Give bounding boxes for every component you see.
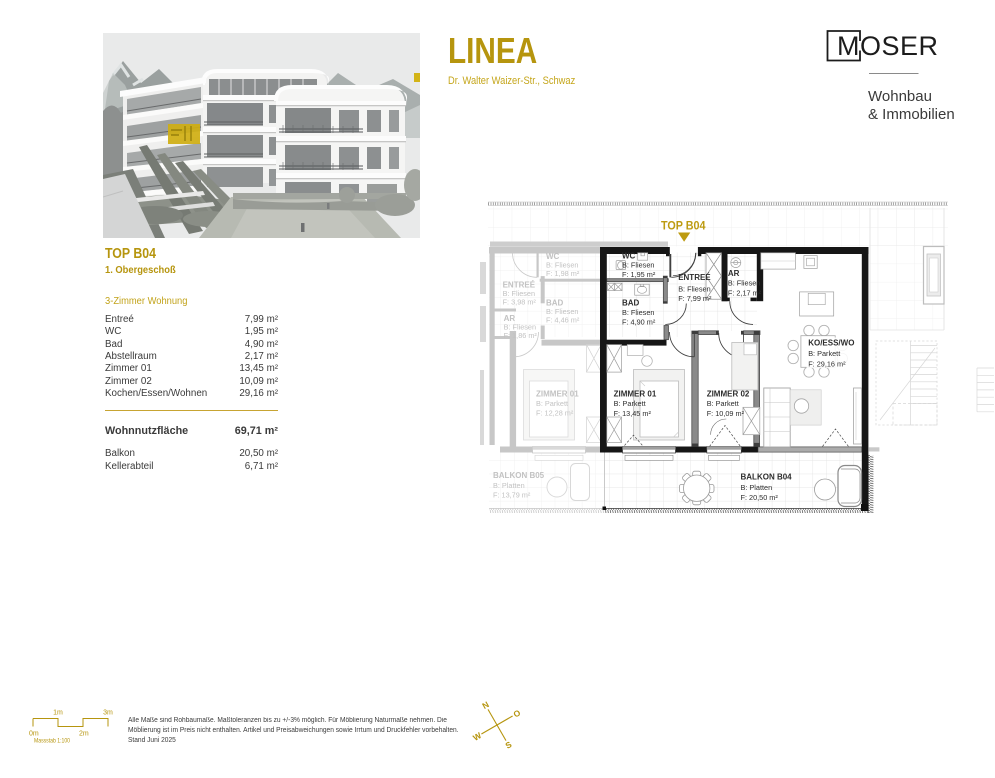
svg-text:F: 4,46 m²: F: 4,46 m² xyxy=(546,316,580,325)
svg-text:N: N xyxy=(480,699,490,711)
svg-text:1m: 1m xyxy=(53,710,63,717)
svg-text:0m: 0m xyxy=(29,731,39,738)
svg-text:Massstab 1:100: Massstab 1:100 xyxy=(34,738,70,745)
svg-text:BAD: BAD xyxy=(622,298,640,307)
svg-text:B: Parkett: B: Parkett xyxy=(707,399,739,408)
svg-text:2m: 2m xyxy=(79,731,89,738)
svg-text:TOP B04: TOP B04 xyxy=(661,221,706,233)
svg-text:S: S xyxy=(504,739,514,751)
svg-text:WC: WC xyxy=(622,252,636,261)
svg-text:F: 7,99 m²: F: 7,99 m² xyxy=(678,294,712,303)
svg-text:ENTREÉ: ENTREÉ xyxy=(678,273,711,282)
svg-text:BALKON B05: BALKON B05 xyxy=(493,471,545,480)
svg-text:ZIMMER 01: ZIMMER 01 xyxy=(536,389,579,398)
svg-text:3m: 3m xyxy=(103,710,113,717)
svg-text:F: 3,98 m²: F: 3,98 m² xyxy=(503,298,537,307)
svg-text:Wohnbau: Wohnbau xyxy=(868,88,932,105)
svg-text:B: Fliesen: B: Fliesen xyxy=(678,284,710,293)
svg-text:B: Parkett: B: Parkett xyxy=(614,399,646,408)
svg-text:B: Platten: B: Platten xyxy=(741,483,773,492)
svg-text:B: Parkett: B: Parkett xyxy=(536,399,568,408)
svg-text:B: Fliesen: B: Fliesen xyxy=(728,279,760,288)
svg-text:F: 10,09 m²: F: 10,09 m² xyxy=(707,409,745,418)
svg-text:F: 12,28 m²: F: 12,28 m² xyxy=(536,408,574,417)
svg-text:B: Parkett: B: Parkett xyxy=(808,349,840,358)
svg-text:ZIMMER 02: ZIMMER 02 xyxy=(707,389,750,398)
svg-text:B: Fliesen: B: Fliesen xyxy=(622,308,654,317)
svg-text:BALKON B04: BALKON B04 xyxy=(741,473,793,482)
svg-text:F: 2,17 m²: F: 2,17 m² xyxy=(728,288,762,297)
svg-text:F: 1,95 m²: F: 1,95 m² xyxy=(622,270,656,279)
svg-text:F: 13,79 m²: F: 13,79 m² xyxy=(493,491,531,500)
svg-text:F: 1,86 m²: F: 1,86 m² xyxy=(504,331,538,340)
svg-text:B: Fliesen: B: Fliesen xyxy=(622,260,654,269)
svg-text:F: 1,98 m²: F: 1,98 m² xyxy=(546,269,580,278)
svg-text:F: 20,50 m²: F: 20,50 m² xyxy=(741,493,779,502)
svg-text:F: 29,16 m²: F: 29,16 m² xyxy=(808,359,846,368)
svg-text:B: Platten: B: Platten xyxy=(493,481,525,490)
svg-text:MOSER: MOSER xyxy=(837,31,939,61)
svg-text:W: W xyxy=(471,730,484,743)
svg-text:& Immobilien: & Immobilien xyxy=(868,106,955,123)
svg-text:AR: AR xyxy=(728,269,740,278)
svg-text:O: O xyxy=(512,707,523,719)
svg-text:ZIMMER 01: ZIMMER 01 xyxy=(614,389,657,398)
svg-text:KO/ESS/WO: KO/ESS/WO xyxy=(808,338,854,347)
svg-text:F: 13,45 m²: F: 13,45 m² xyxy=(614,409,652,418)
svg-text:F: 4,90 m²: F: 4,90 m² xyxy=(622,317,656,326)
